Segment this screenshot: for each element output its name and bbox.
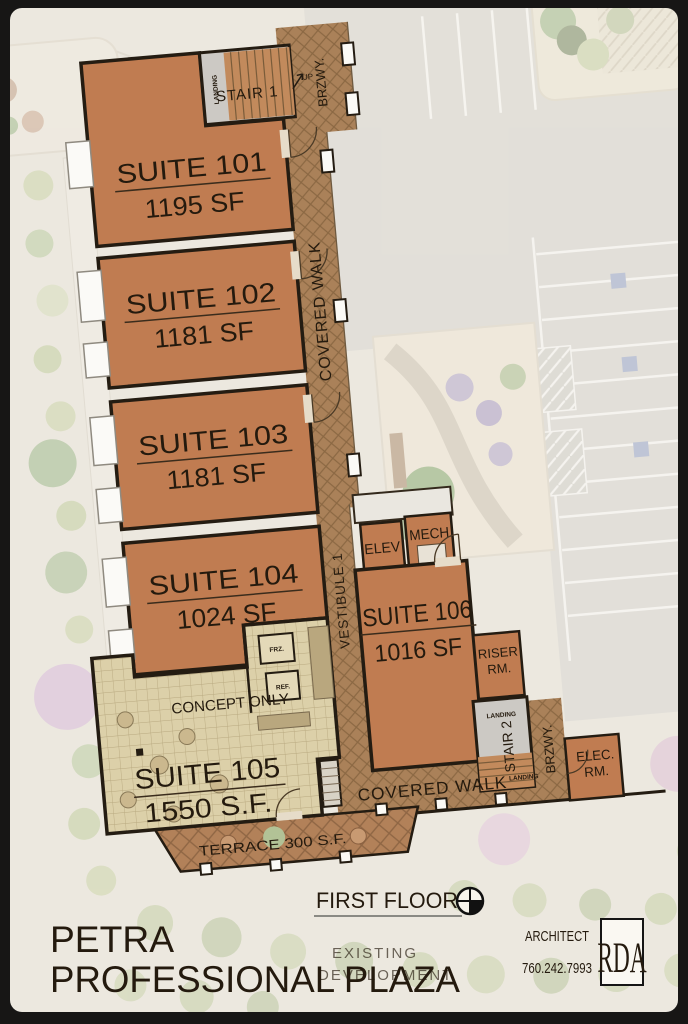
porch-steps xyxy=(320,760,342,807)
suite-105-label: SUITE 105 1550 S.F. xyxy=(131,751,288,829)
architect-logo: RDA xyxy=(597,933,646,982)
sheet-border: STAIR 1 LANDING UP xyxy=(10,8,678,1012)
elec-label-line2: RM. xyxy=(584,763,610,780)
north-arrow-icon xyxy=(457,888,483,914)
riser-label-line2: RM. xyxy=(487,660,512,677)
plan-sheet: STAIR 1 LANDING UP xyxy=(0,0,688,1024)
freezer-label: FRZ. xyxy=(269,646,284,654)
architect-phone: 760.242.7993 xyxy=(522,960,592,977)
stair-1-up-label: UP xyxy=(302,72,314,82)
project-title-line1: PETRA xyxy=(50,919,174,960)
architect-block: ARCHITECT 760.242.7993 RDA xyxy=(522,919,647,985)
floor-label: FIRST FLOOR xyxy=(316,888,458,913)
rotated-site: STAIR 1 LANDING UP xyxy=(10,8,678,1012)
floor-plan-drawing: STAIR 1 LANDING UP xyxy=(10,8,678,1012)
architect-label: ARCHITECT xyxy=(525,928,589,945)
project-title-line2: PROFESSIONAL PLAZA xyxy=(50,959,460,1000)
elev-label: ELEV xyxy=(364,539,402,558)
suite-106-room xyxy=(355,560,484,770)
